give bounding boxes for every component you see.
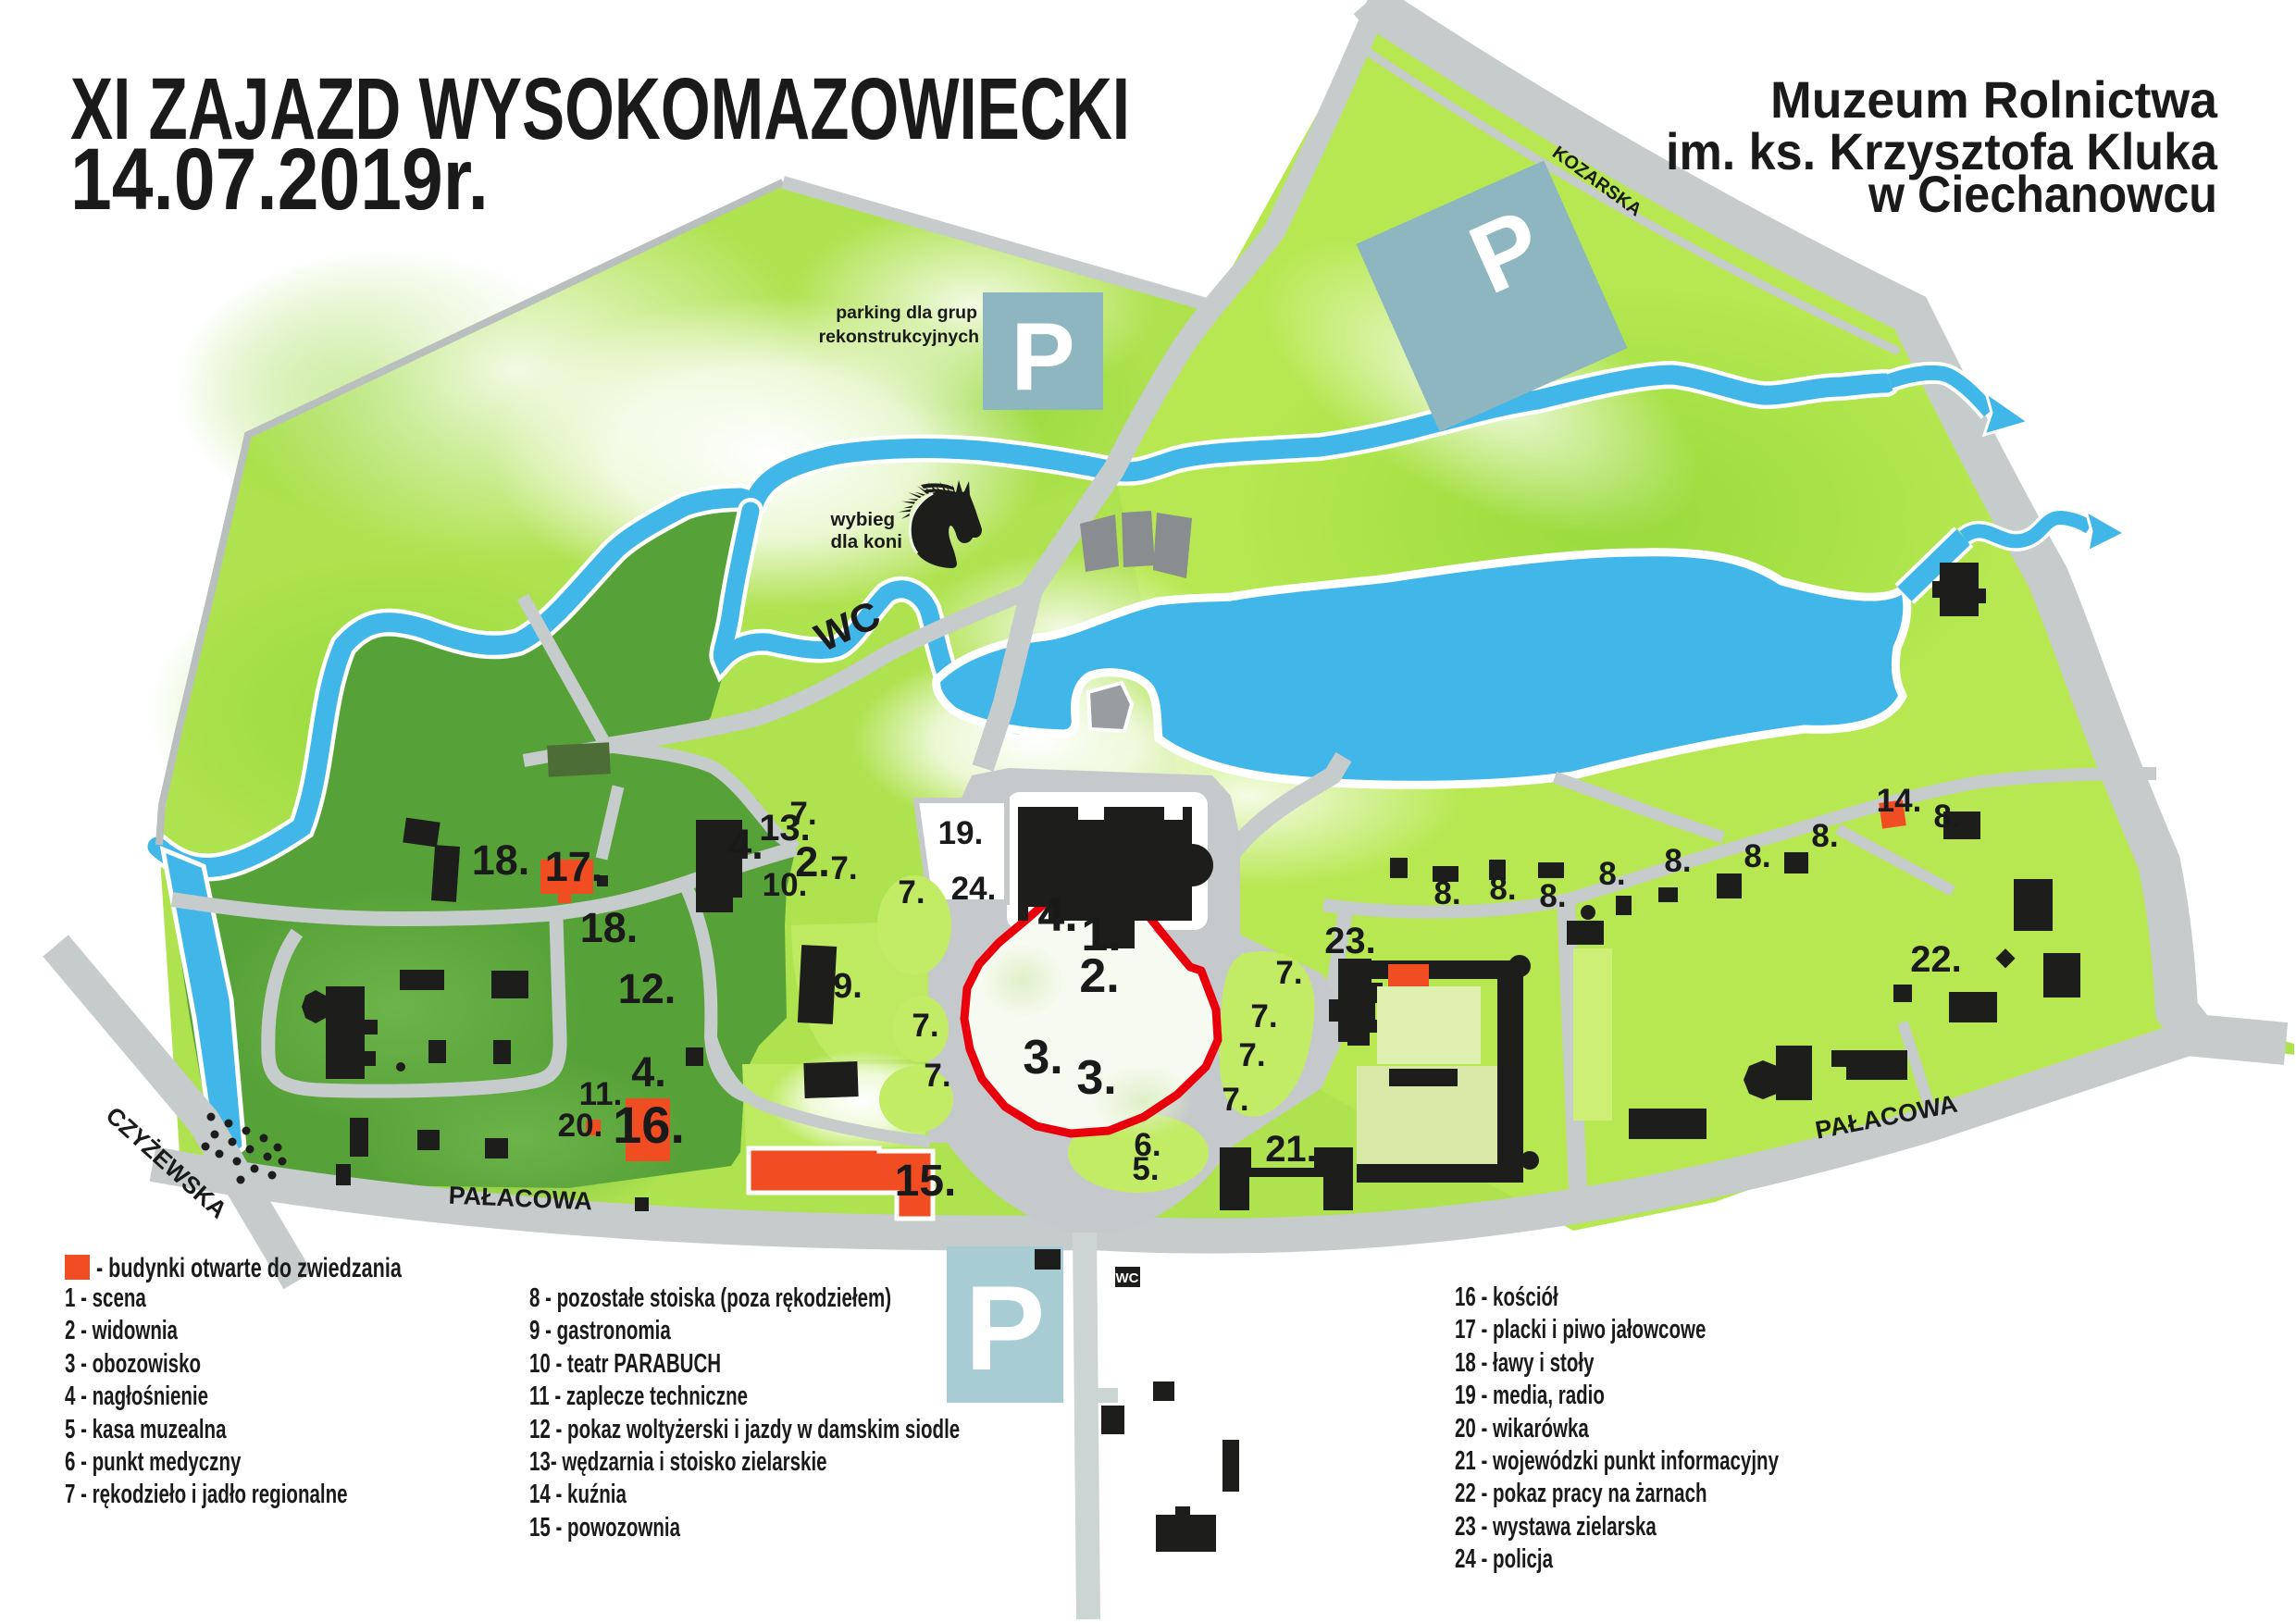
svg-text:6 - punkt medyczny: 6 - punkt medyczny xyxy=(65,1448,242,1477)
svg-text:23 - wystawa zielarska: 23 - wystawa zielarska xyxy=(1455,1513,1657,1542)
svg-text:8.: 8. xyxy=(1598,856,1625,892)
svg-text:8.: 8. xyxy=(1744,838,1770,874)
svg-text:dla koni: dla koni xyxy=(831,531,902,552)
svg-text:10 - teatr PARABUCH: 10 - teatr PARABUCH xyxy=(529,1350,721,1379)
svg-text:12 - pokaz woltyżerski i jazdy: 12 - pokaz woltyżerski i jazdy w damskim… xyxy=(529,1416,960,1444)
svg-text:8.: 8. xyxy=(1933,799,1960,835)
svg-text:14.: 14. xyxy=(1877,783,1922,819)
svg-text:4.: 4. xyxy=(1037,888,1077,942)
svg-text:5.: 5. xyxy=(1132,1151,1159,1187)
svg-text:9 - gastronomia: 9 - gastronomia xyxy=(529,1317,671,1345)
svg-text:3 - obozowisko: 3 - obozowisko xyxy=(65,1350,201,1379)
svg-text:20 - wikarówka: 20 - wikarówka xyxy=(1455,1415,1589,1443)
svg-text:16 - kościół: 16 - kościół xyxy=(1455,1283,1558,1312)
svg-text:parking dla grup: parking dla grup xyxy=(836,303,977,323)
svg-text:8.: 8. xyxy=(1811,818,1838,854)
svg-text:wybieg: wybieg xyxy=(830,509,896,530)
svg-text:WC: WC xyxy=(1116,1270,1139,1286)
svg-text:7.: 7. xyxy=(1222,1082,1248,1118)
svg-text:2.: 2. xyxy=(795,838,830,886)
svg-text:7.: 7. xyxy=(1275,955,1302,991)
svg-text:- budynki otwarte do zwiedzani: - budynki otwarte do zwiedzania xyxy=(96,1251,402,1282)
svg-text:20.: 20. xyxy=(558,1108,603,1144)
svg-text:7.: 7. xyxy=(1238,1037,1265,1073)
svg-text:w Ciechanowcu: w Ciechanowcu xyxy=(1868,165,2217,223)
svg-text:rekonstrukcyjnych: rekonstrukcyjnych xyxy=(819,327,979,347)
svg-text:3.: 3. xyxy=(1076,1051,1116,1105)
svg-text:7.: 7. xyxy=(789,796,816,832)
svg-text:12.: 12. xyxy=(618,965,676,1012)
svg-text:4.: 4. xyxy=(631,1048,666,1096)
svg-text:4.: 4. xyxy=(728,821,763,868)
svg-text:14 - kuźnia: 14 - kuźnia xyxy=(529,1481,627,1509)
svg-text:7 - rękodzieło i jadło regiona: 7 - rękodzieło i jadło regionalne xyxy=(65,1481,348,1509)
svg-text:P: P xyxy=(1011,304,1074,411)
svg-text:4 - nagłośnienie: 4 - nagłośnienie xyxy=(65,1382,208,1411)
svg-text:3.: 3. xyxy=(1023,1031,1062,1084)
svg-text:15.: 15. xyxy=(895,1157,957,1206)
svg-text:5 - kasa muzealna: 5 - kasa muzealna xyxy=(65,1416,227,1444)
svg-text:2.: 2. xyxy=(1079,949,1119,1003)
svg-text:8.: 8. xyxy=(1433,875,1460,911)
svg-text:19 - media, radio: 19 - media, radio xyxy=(1455,1381,1605,1410)
svg-text:7.: 7. xyxy=(830,850,857,886)
svg-text:21.: 21. xyxy=(1265,1129,1317,1170)
svg-text:2 - widownia: 2 - widownia xyxy=(65,1317,178,1345)
svg-text:18.: 18. xyxy=(472,836,530,884)
svg-text:P: P xyxy=(965,1260,1046,1395)
svg-text:9.: 9. xyxy=(833,967,863,1006)
svg-text:8.: 8. xyxy=(1539,878,1566,914)
svg-text:22.: 22. xyxy=(1910,939,1962,980)
svg-text:18 - ławy i stoły: 18 - ławy i stoły xyxy=(1455,1349,1595,1378)
svg-text:16.: 16. xyxy=(613,1096,685,1154)
svg-text:8.: 8. xyxy=(1489,871,1516,907)
svg-text:23.: 23. xyxy=(1324,921,1376,961)
svg-text:Muzeum Rolnictwa: Muzeum Rolnictwa xyxy=(1770,70,2218,129)
svg-text:21 - wojewódzki punkt informac: 21 - wojewódzki punkt informacyjny xyxy=(1455,1447,1779,1476)
svg-text:8.: 8. xyxy=(1664,843,1691,879)
svg-text:15 - powozownia: 15 - powozownia xyxy=(529,1514,680,1542)
svg-text:7.: 7. xyxy=(912,1008,938,1044)
svg-text:24.: 24. xyxy=(951,871,997,907)
svg-text:7.: 7. xyxy=(898,874,925,911)
svg-text:11 - zaplecze techniczne: 11 - zaplecze techniczne xyxy=(529,1382,748,1411)
svg-text:7.: 7. xyxy=(924,1058,950,1094)
svg-text:22 - pokaz pracy na żarnach: 22 - pokaz pracy na żarnach xyxy=(1455,1480,1707,1508)
svg-text:17 - placki i piwo jałowcowe: 17 - placki i piwo jałowcowe xyxy=(1455,1316,1706,1344)
svg-text:7.: 7. xyxy=(1250,998,1277,1035)
svg-text:14.07.2019r.: 14.07.2019r. xyxy=(70,130,489,229)
svg-text:13- wędzarnia i stoisko zielar: 13- wędzarnia i stoisko zielarskie xyxy=(529,1448,827,1477)
svg-text:18.: 18. xyxy=(580,904,639,951)
svg-text:19.: 19. xyxy=(938,815,984,851)
svg-text:8 - pozostałe stoiska (poza rę: 8 - pozostałe stoiska (poza rękodziełem) xyxy=(529,1284,891,1313)
svg-text:17.: 17. xyxy=(545,843,603,890)
svg-text:24 - policja: 24 - policja xyxy=(1455,1545,1553,1574)
svg-text:1 - scena: 1 - scena xyxy=(65,1284,146,1313)
